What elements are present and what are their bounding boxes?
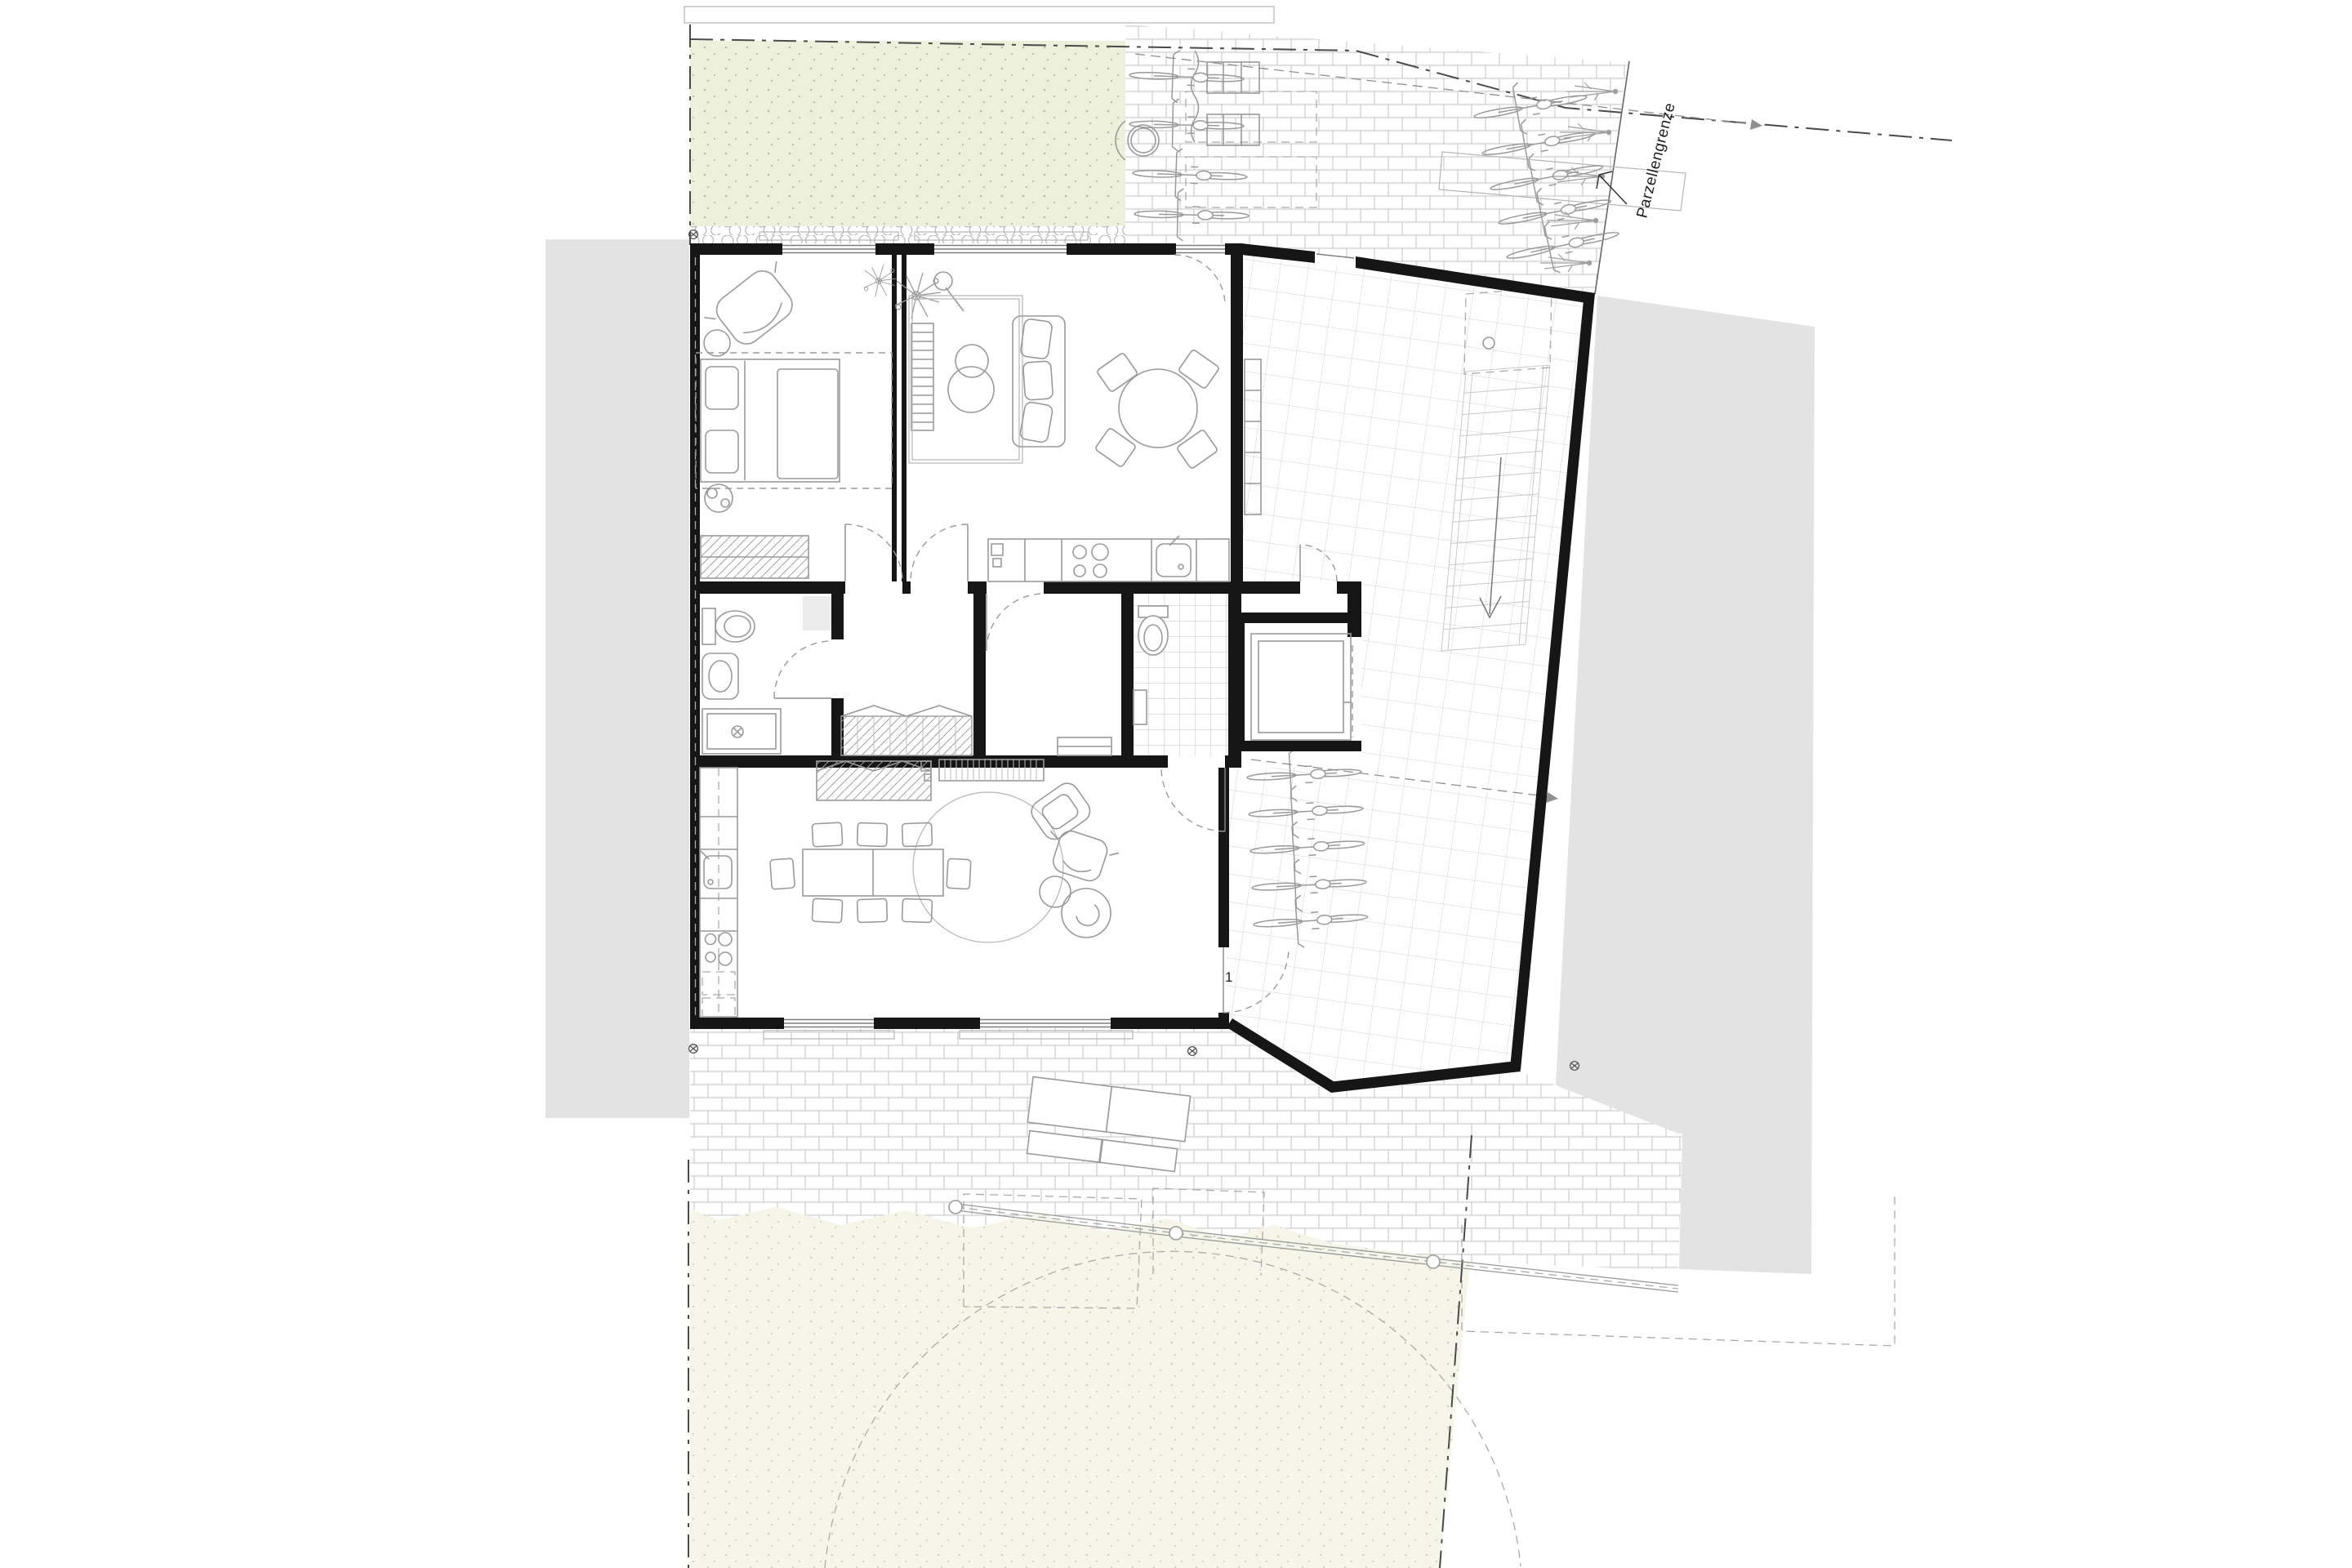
- kitchen-counter-upper: [988, 536, 1229, 581]
- pouf-small: [1040, 876, 1071, 907]
- bedroom-rug: [696, 353, 892, 488]
- pouf-large: [948, 367, 994, 412]
- armchair-1: [1027, 779, 1094, 844]
- neighbor-building-west: [546, 239, 689, 1118]
- paved-court-north: [1125, 24, 1628, 294]
- floor-lamp: [934, 272, 952, 290]
- door-number-label: 1: [1225, 969, 1232, 985]
- shelf: [911, 323, 933, 430]
- kitchen-counter-lower: [700, 768, 737, 1017]
- dining-table: [770, 822, 971, 923]
- shower: [702, 709, 781, 754]
- terrace-door-swing-living: [1174, 255, 1225, 305]
- lawn-south: [690, 1207, 1470, 1568]
- sink: [1156, 544, 1191, 577]
- pouf: [955, 345, 988, 377]
- living-room: [864, 265, 1229, 581]
- sofa: [1013, 316, 1065, 447]
- lawn-north: [690, 41, 1125, 226]
- wc-tank: [702, 608, 715, 644]
- round-rug: [913, 792, 1063, 942]
- hall-wardrobe: [841, 706, 972, 755]
- reduit: [1058, 737, 1111, 755]
- armchair: [702, 258, 807, 357]
- terrace: [1227, 255, 1592, 1082]
- dining-table-round: [1094, 349, 1219, 469]
- wardrobe: [701, 536, 808, 578]
- bathroom-small: [1134, 594, 1228, 755]
- bed: [701, 359, 840, 482]
- cobble-strip: [690, 226, 1196, 243]
- dining-room: [700, 759, 1120, 1017]
- pouf-large-2: [1062, 889, 1111, 938]
- living-rug: [909, 296, 1022, 463]
- floor-plan-drawing: Parzellengrenze 1: [0, 0, 2352, 1568]
- parcel-boundary-label: Parzellengrenze: [1633, 101, 1678, 220]
- wardrobe-lower: [817, 761, 931, 800]
- bathroom: [702, 596, 831, 754]
- floor-plan-page: Parzellengrenze 1: [0, 0, 2352, 1568]
- bedroom: [696, 258, 892, 578]
- side-table: [704, 330, 730, 356]
- armchair-2: [1040, 825, 1121, 888]
